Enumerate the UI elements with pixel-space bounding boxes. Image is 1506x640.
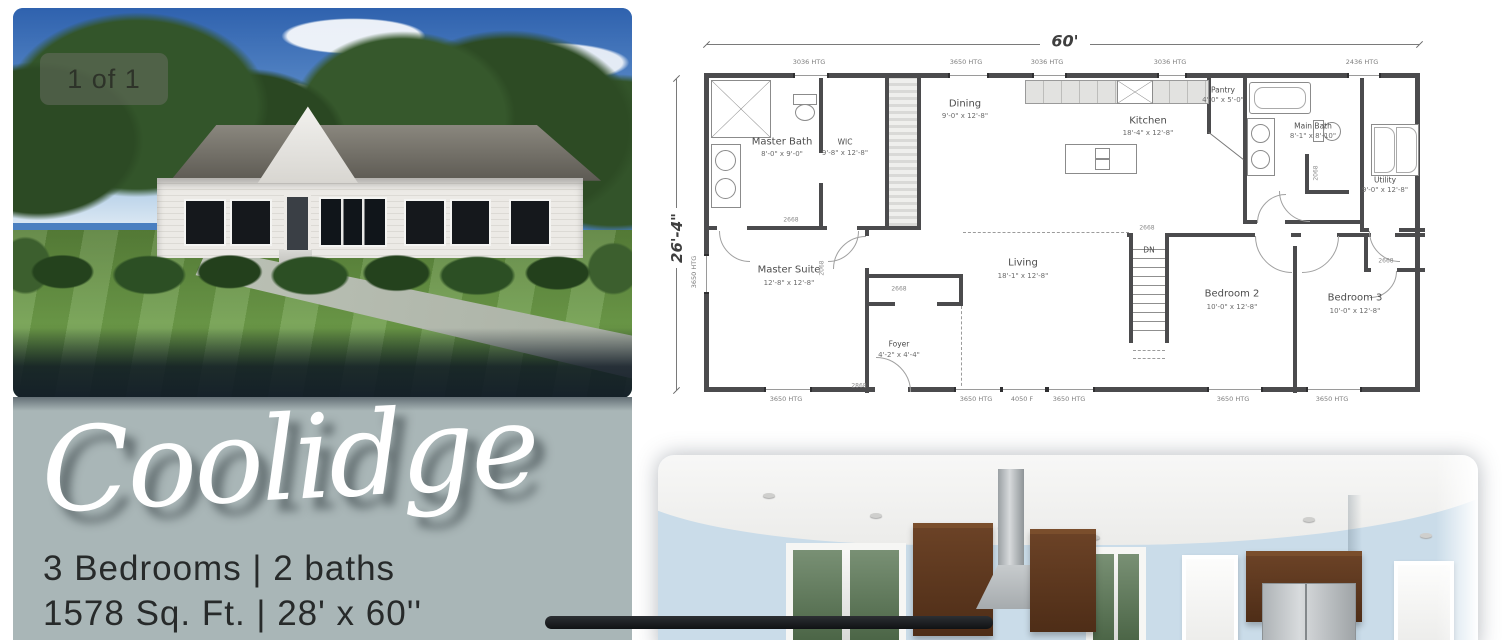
door-size-label: 2868: [851, 383, 866, 390]
refrigerator: [1262, 583, 1356, 640]
window: [704, 254, 709, 294]
room-label-pantry: Pantry: [1211, 86, 1235, 95]
divider-bar: [545, 616, 993, 629]
range-hood-duct: [998, 469, 1024, 565]
stair-dashed-tread: [1133, 350, 1165, 351]
kitchen-interior-photo: [658, 455, 1478, 640]
house-exterior-photo: 1 of 1: [13, 8, 632, 398]
recessed-light: [1420, 533, 1432, 538]
door-opening: [717, 226, 747, 230]
room-dims-utility: 9'-0" x 12'-8": [1362, 186, 1408, 194]
window-size-label: 4050 F: [1011, 395, 1033, 403]
wall-segment: [819, 78, 823, 153]
sink: [1251, 124, 1270, 143]
window: [1157, 73, 1187, 78]
angled-door: [1208, 132, 1243, 160]
sink: [715, 178, 736, 199]
door-swing: [719, 200, 781, 262]
room-label-foyer: Foyer: [889, 340, 910, 349]
shower: [711, 80, 771, 138]
door-opening: [827, 226, 857, 230]
room-dims-pantry: 4'-0" x 5'-0": [1202, 96, 1244, 104]
room-label-wic: WIC: [838, 138, 853, 147]
window-size-label: 3650 HTG: [1316, 395, 1349, 403]
staircase: [1133, 241, 1165, 339]
window: [1207, 387, 1263, 392]
hall-closet-shelving: [889, 78, 917, 226]
island-sink: [1095, 148, 1110, 159]
overall-width-dimension: 60': [1047, 32, 1082, 51]
window-size-label: 3036 HTG: [793, 58, 826, 66]
room-label-bedroom-3: Bedroom 3: [1328, 293, 1383, 304]
door-size-label: 2068: [819, 260, 826, 275]
window-size-label: 3650 HTG: [1053, 395, 1086, 403]
window: [1032, 73, 1067, 78]
room-dims-master-bath: 8'-0" x 9'-0": [761, 150, 803, 158]
room-dims-kitchen: 18'-4" x 12'-8": [1123, 129, 1174, 137]
door-size-label: 2668: [891, 286, 906, 293]
tub-basin: [1254, 87, 1306, 109]
room-label-bedroom-2: Bedroom 2: [1205, 289, 1260, 300]
window: [793, 73, 829, 78]
specs-sqft-size: 1578 Sq. Ft. | 28' x 60'': [43, 594, 422, 634]
stairs-dn-label: DN: [1143, 246, 1154, 255]
range: [1117, 80, 1153, 104]
wall-segment: [1364, 233, 1368, 272]
interior-door: [1182, 555, 1238, 640]
stair-opening: [1133, 233, 1167, 237]
window-size-label: 3650 HTG: [950, 58, 983, 66]
door-size-label: 2668: [1139, 225, 1154, 232]
info-panel: Coolidge 3 Bedrooms | 2 baths 1578 Sq. F…: [13, 397, 632, 640]
window: [1001, 387, 1047, 392]
window: [948, 73, 989, 78]
floor-plan: Master Bath 8'-0" x 9'-0" WIC 9'-8" x 12…: [704, 73, 1420, 392]
room-dims-dining: 9'-0" x 12'-8": [942, 112, 988, 120]
sink: [715, 150, 736, 171]
window-size-label: 3036 HTG: [1154, 58, 1187, 66]
dimension-line: [706, 44, 1040, 45]
window-size-label: 2436 HTG: [1346, 58, 1379, 66]
window: [1306, 387, 1362, 392]
window: [954, 387, 1002, 392]
recessed-light: [870, 513, 882, 518]
room-dims-master-suite: 12'-8" x 12'-8": [764, 279, 815, 287]
recessed-light: [763, 493, 775, 498]
dimension-line: [676, 268, 677, 390]
window: [1047, 387, 1095, 392]
door-size-label: 2068: [1313, 165, 1320, 180]
door-swing: [841, 357, 911, 427]
roof: [143, 125, 601, 181]
washer: [1374, 127, 1395, 173]
stair-dashed-tread: [1133, 358, 1165, 359]
wall-segment: [865, 274, 963, 278]
cased-opening: [961, 306, 962, 391]
flyer-page: 1 of 1 Coolidge 3 Bedrooms | 2 baths 157…: [0, 0, 1506, 640]
gallery-counter-badge: 1 of 1: [40, 53, 168, 105]
room-dims-bedroom-2: 10'-0" x 12'-8": [1207, 303, 1258, 311]
bathtub: [1249, 82, 1311, 114]
dryer: [1396, 127, 1417, 173]
wall-segment: [1293, 246, 1297, 393]
toilet-bowl: [795, 104, 815, 121]
room-dims-main-bath: 8'-1" x 8'-10": [1290, 132, 1336, 140]
upper-cabinet: [1030, 529, 1096, 632]
room-label-kitchen: Kitchen: [1129, 116, 1167, 127]
photo-edge-fade: [1436, 455, 1478, 640]
washer-dryer: [1371, 124, 1419, 176]
photo-bottom-shade: [13, 328, 632, 398]
island-sink: [1095, 159, 1110, 170]
wall-segment: [1360, 78, 1364, 228]
bushes: [13, 234, 632, 296]
room-label-master-suite: Master Suite: [758, 265, 821, 276]
window-size-label: 3036 HTG: [1031, 58, 1064, 66]
room-dims-wic: 9'-8" x 12'-8": [822, 149, 868, 157]
specs-bedrooms-baths: 3 Bedrooms | 2 baths: [43, 549, 395, 589]
overall-depth-dimension: 26'-4": [668, 209, 686, 267]
room-dims-bedroom-3: 10'-0" x 12'-8": [1330, 307, 1381, 315]
dimension-line: [1090, 44, 1420, 45]
wall-segment: [819, 183, 823, 230]
wall-segment: [1165, 233, 1169, 343]
room-label-utility: Utility: [1374, 176, 1396, 185]
wall-segment: [917, 78, 921, 230]
door-opening: [895, 302, 937, 306]
room-dims-foyer: 4'-2" x 4'-4": [878, 351, 920, 359]
window: [1347, 73, 1381, 78]
window-size-label: 3650 HTG: [960, 395, 993, 403]
dimension-line: [676, 78, 677, 208]
window-size-label: 3650 HTG: [690, 256, 698, 289]
sink: [1251, 150, 1270, 169]
door-size-label: 2668: [783, 217, 798, 224]
window-size-label: 3650 HTG: [770, 395, 803, 403]
door-size-label: 2668: [1378, 258, 1393, 265]
wall-segment: [1305, 154, 1309, 194]
room-label-main-bath: Main Bath: [1294, 122, 1332, 131]
ceiling-break-line: [963, 232, 1129, 233]
room-label-master-bath: Master Bath: [752, 137, 813, 148]
room-dims-living: 18'-1" x 12'-8": [998, 272, 1049, 280]
gallery-counter-text: 1 of 1: [67, 64, 141, 95]
shower-hatch: [712, 81, 770, 137]
model-name: Coolidge: [38, 397, 605, 545]
room-label-living: Living: [1008, 258, 1038, 269]
wall-segment: [959, 274, 963, 306]
window: [764, 387, 812, 392]
room-label-dining: Dining: [949, 99, 981, 110]
wall-segment: [1305, 190, 1349, 194]
window-size-label: 3650 HTG: [1217, 395, 1250, 403]
recessed-light: [1303, 517, 1315, 522]
